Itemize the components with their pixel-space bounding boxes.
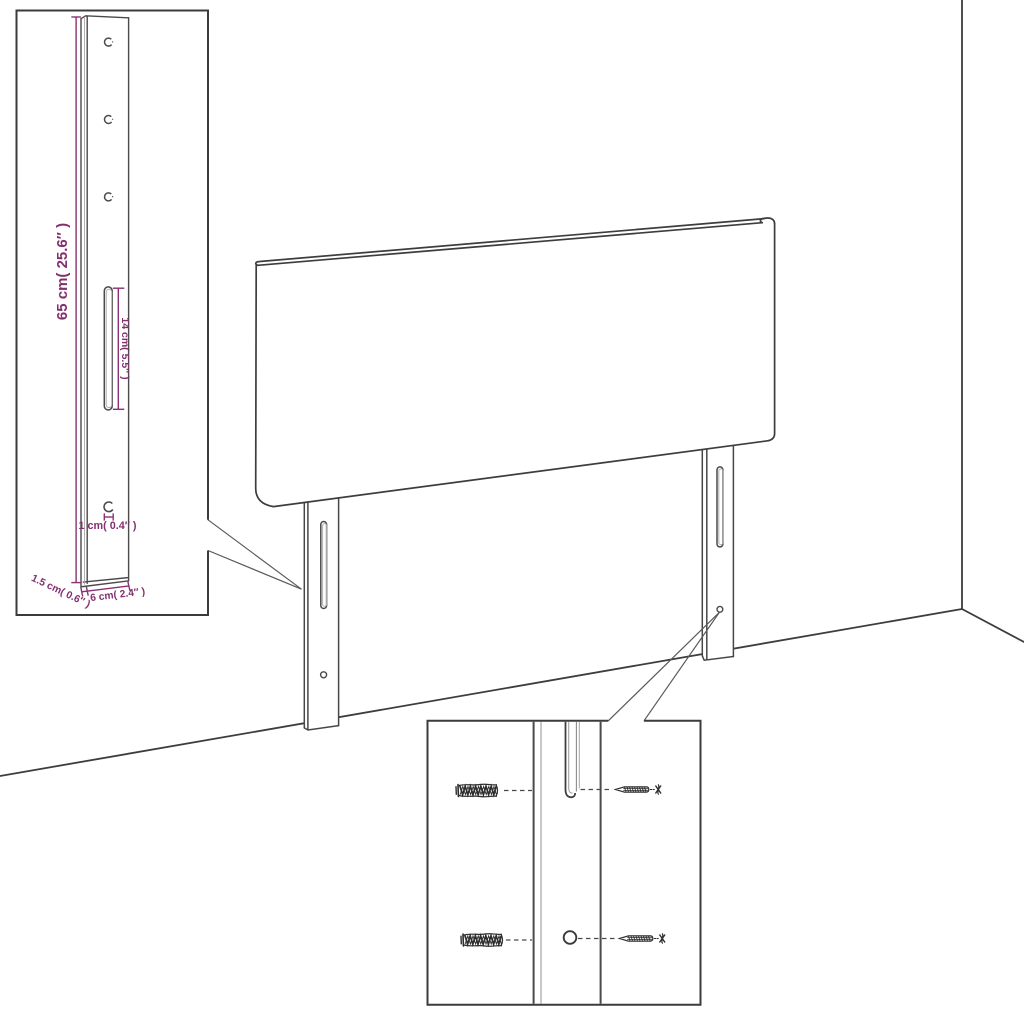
- svg-text:65 cm( 25.6″ ): 65 cm( 25.6″ ): [54, 223, 71, 320]
- svg-text:14 cm( 5.5″ ): 14 cm( 5.5″ ): [119, 317, 131, 379]
- svg-text:1 cm( 0.4″ ): 1 cm( 0.4″ ): [79, 520, 137, 532]
